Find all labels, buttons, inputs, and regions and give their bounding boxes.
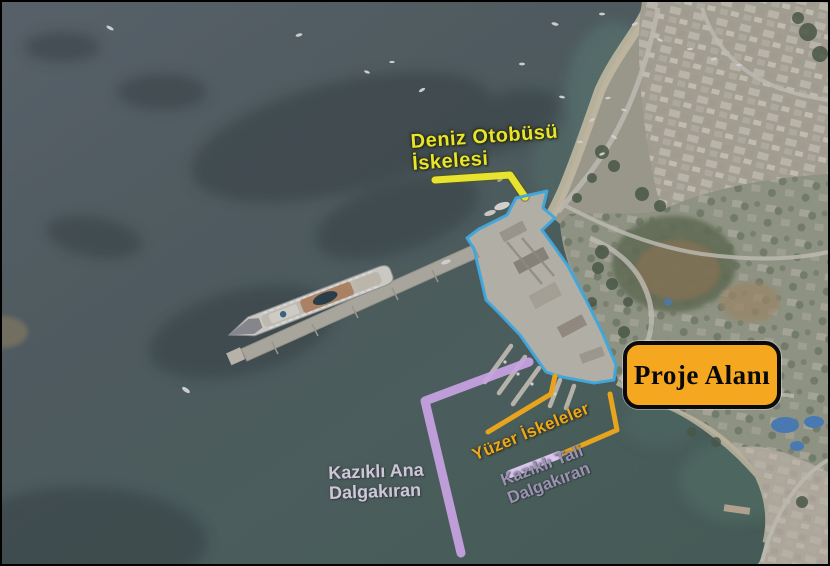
main-breakwater-label-line2: Dalgakıran xyxy=(329,480,425,503)
project-area-box: Proje Alanı xyxy=(623,341,781,409)
project-area-box-label: Proje Alanı xyxy=(634,360,770,391)
project-area-outline xyxy=(467,191,616,383)
satellite-map-figure: Deniz Otobüsü İskelesi Yüzer İskeleler K… xyxy=(0,0,830,566)
main-breakwater-label: Kazıklı Ana Dalgakıran xyxy=(328,460,425,504)
